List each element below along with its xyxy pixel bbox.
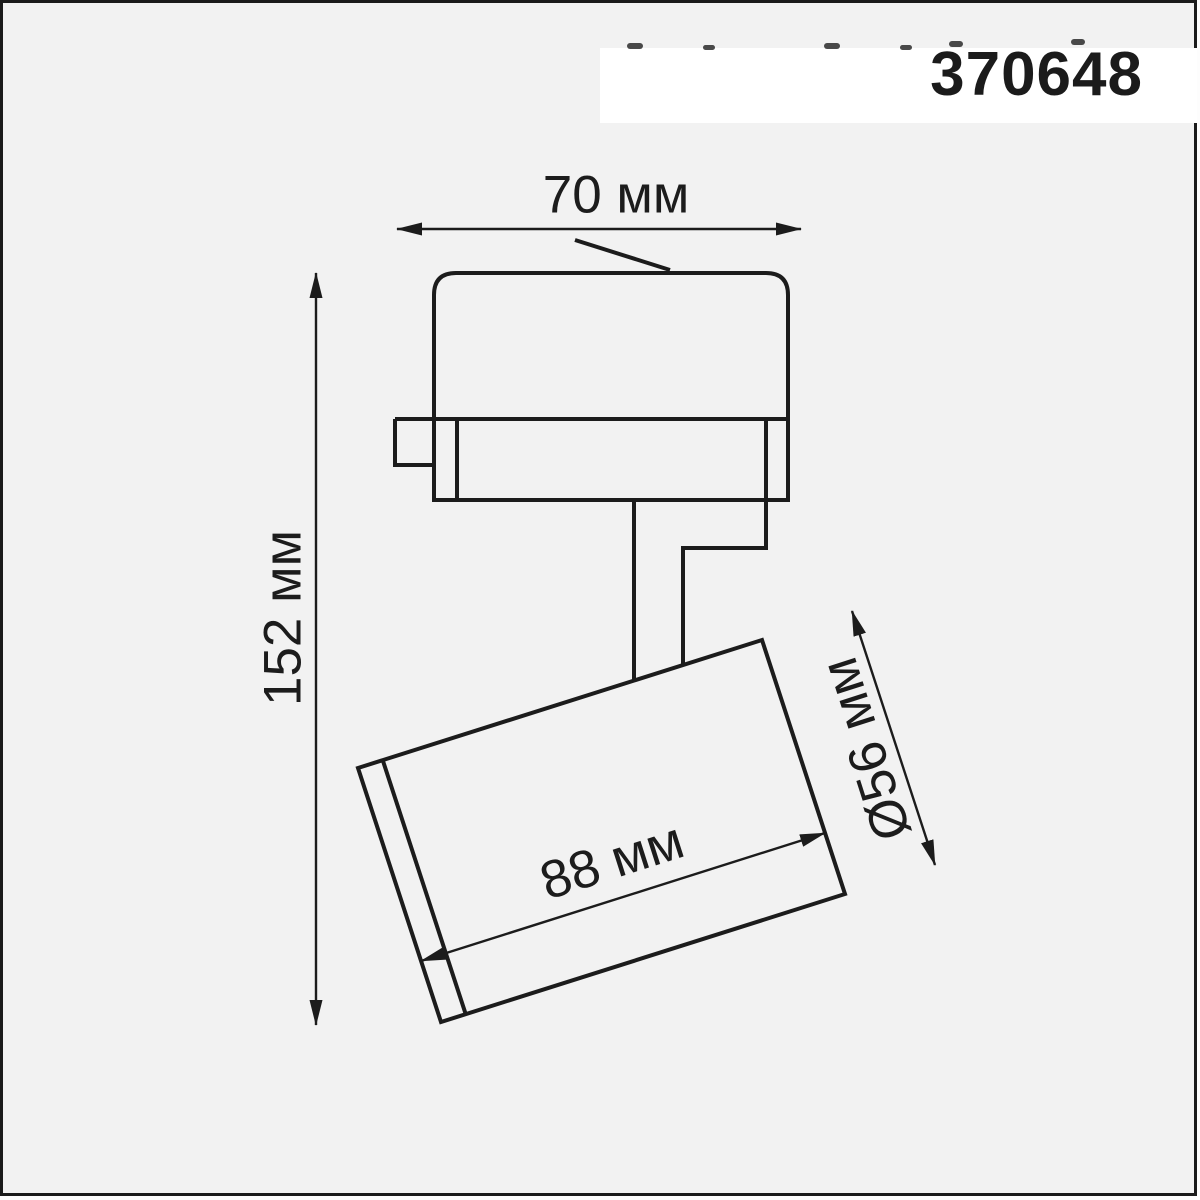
drawing-canvas: 370648: [0, 0, 1200, 1200]
dimension-height-label: 152 мм: [253, 530, 314, 706]
adapter-side-tab: [395, 419, 434, 465]
dimension-width-label: 70 мм: [543, 165, 690, 226]
spot-head-outline: [358, 640, 845, 1022]
lever-line: [575, 240, 670, 270]
adapter-body-outline: [434, 273, 788, 500]
